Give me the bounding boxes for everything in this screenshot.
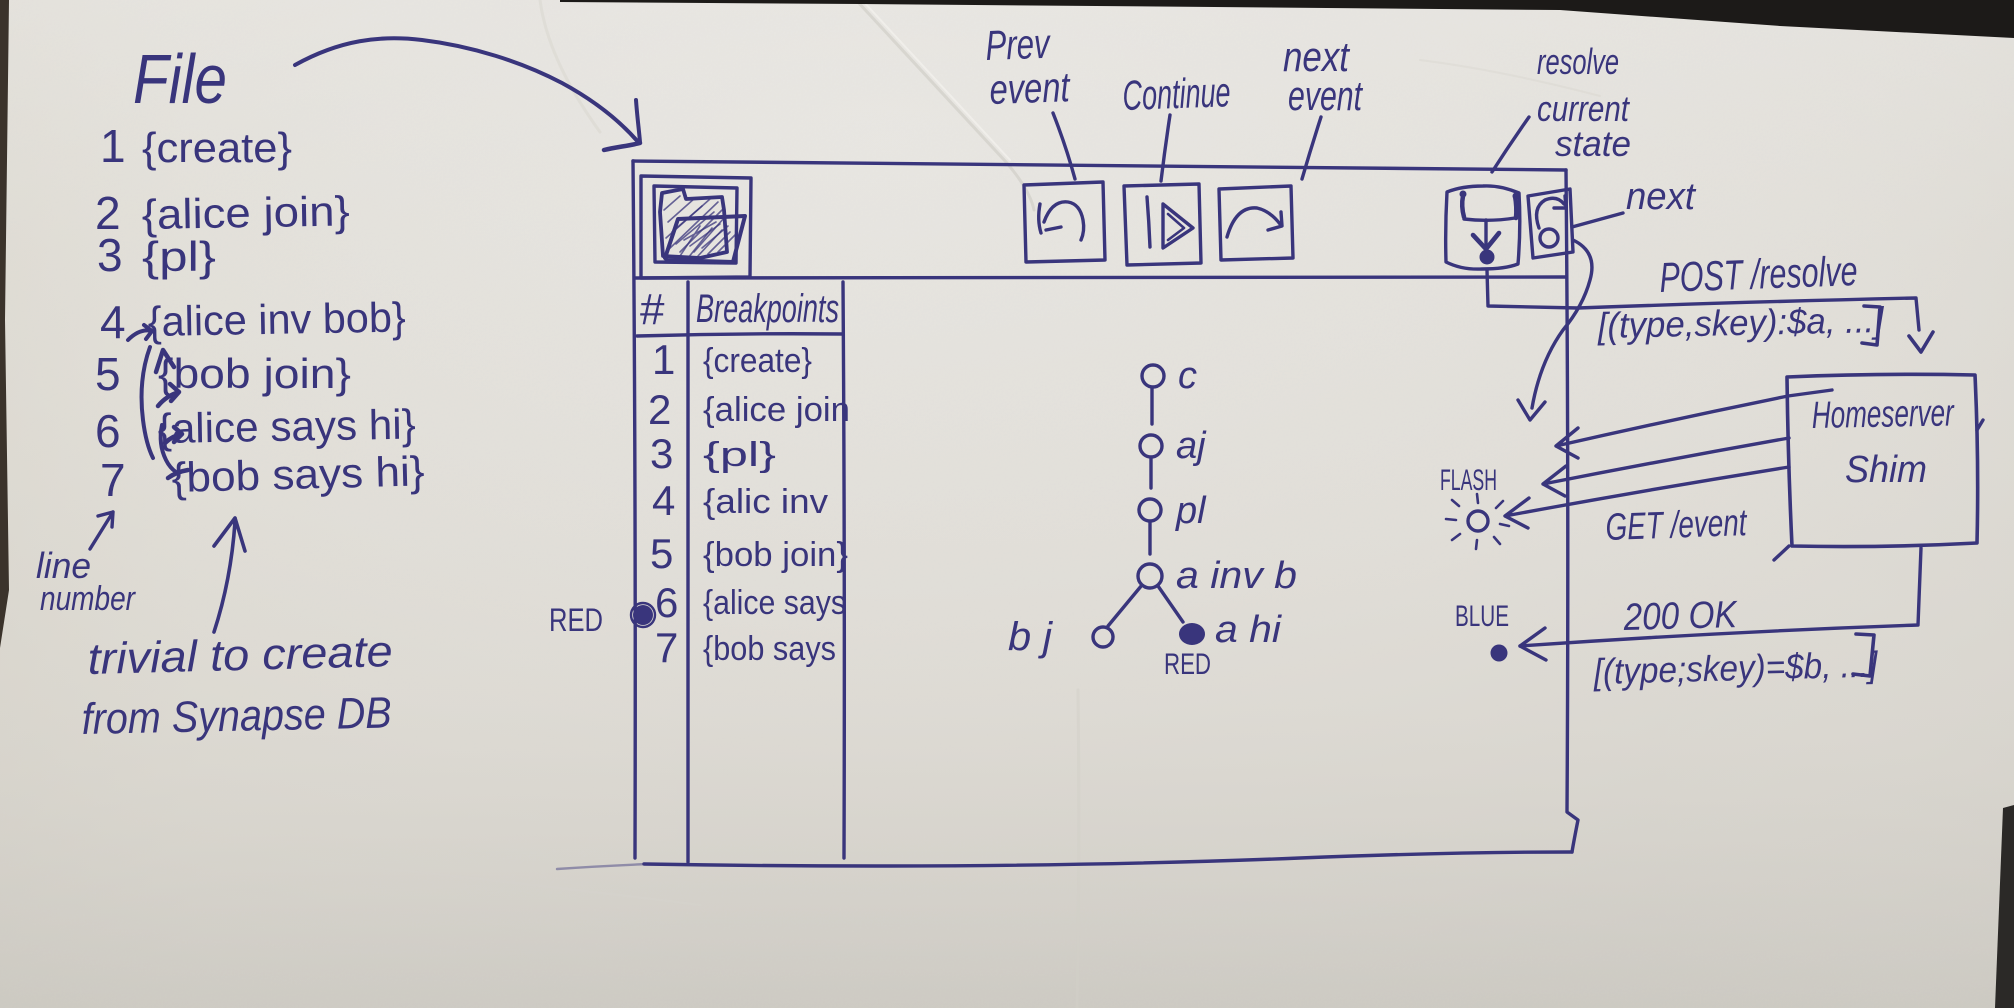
svg-text:a hi: a hi xyxy=(1215,609,1283,651)
svg-text:{create}: {create} xyxy=(142,124,292,171)
svg-text:{alic inv: {alic inv xyxy=(703,483,828,521)
svg-text:[(type,skey):$a, ...]: [(type,skey):$a, ...] xyxy=(1596,299,1885,346)
svg-text:c: c xyxy=(1178,355,1197,397)
svg-text:aj: aj xyxy=(1176,425,1207,467)
svg-text:{create}: {create} xyxy=(703,342,812,380)
svg-text:{alice says: {alice says xyxy=(703,584,846,622)
svg-text:pl: pl xyxy=(1175,490,1207,532)
svg-text:200 OK: 200 OK xyxy=(1622,594,1738,639)
svg-text:5: 5 xyxy=(650,530,673,577)
svg-text:Prev: Prev xyxy=(985,20,1053,69)
svg-text:File: File xyxy=(133,40,227,118)
svg-text:4: 4 xyxy=(100,296,126,348)
svg-text:#: # xyxy=(640,285,665,334)
svg-text:{pl}: {pl} xyxy=(703,436,776,474)
svg-text:6: 6 xyxy=(655,579,678,626)
svg-text:{bob join}: {bob join} xyxy=(158,350,351,397)
svg-text:3: 3 xyxy=(650,430,673,477)
svg-text:event: event xyxy=(989,63,1072,113)
svg-text:{alice says hi}: {alice says hi} xyxy=(157,401,416,452)
svg-text:[(type;skey)=$b, ...]: [(type;skey)=$b, ...] xyxy=(1592,644,1879,692)
svg-text:POST /resolve: POST /resolve xyxy=(1659,247,1859,301)
svg-text:6: 6 xyxy=(95,405,121,457)
svg-text:{alice join}: {alice join} xyxy=(141,187,350,238)
svg-text:{alice inv bob}: {alice inv bob} xyxy=(147,294,406,345)
svg-text:1: 1 xyxy=(652,336,675,383)
svg-text:RED: RED xyxy=(1164,648,1211,681)
svg-text:FLASH: FLASH xyxy=(1440,464,1497,497)
svg-text:number: number xyxy=(40,580,136,618)
svg-text:1: 1 xyxy=(100,120,126,172)
svg-text:2: 2 xyxy=(648,386,671,433)
svg-text:event: event xyxy=(1288,72,1364,119)
svg-text:RED: RED xyxy=(549,602,603,638)
svg-text:from Synapse DB: from Synapse DB xyxy=(81,689,392,744)
svg-text:Continue: Continue xyxy=(1122,68,1232,119)
svg-text:trivial to create: trivial to create xyxy=(87,627,393,684)
svg-text:{bob says: {bob says xyxy=(703,630,836,668)
svg-text:7: 7 xyxy=(655,624,678,671)
svg-text:4: 4 xyxy=(652,477,675,524)
svg-text:3: 3 xyxy=(97,229,123,281)
svg-text:5: 5 xyxy=(95,348,121,400)
svg-text:BLUE: BLUE xyxy=(1455,600,1509,633)
svg-text:7: 7 xyxy=(100,454,126,506)
svg-text:{alice join: {alice join xyxy=(703,391,850,429)
svg-text:{bob says hi}: {bob says hi} xyxy=(171,447,425,501)
svg-text:GET /event: GET /event xyxy=(1605,502,1748,549)
svg-text:Homeserver: Homeserver xyxy=(1811,393,1955,437)
svg-text:Breakpoints: Breakpoints xyxy=(696,287,839,331)
svg-text:b j: b j xyxy=(1008,615,1053,659)
svg-text:Shim: Shim xyxy=(1845,449,1927,491)
svg-text:a inv b: a inv b xyxy=(1176,555,1297,597)
svg-text:resolve: resolve xyxy=(1537,41,1619,82)
svg-text:state: state xyxy=(1555,123,1631,164)
svg-text:next: next xyxy=(1626,176,1696,218)
svg-text:{pl}: {pl} xyxy=(142,233,216,280)
svg-text:{bob join}: {bob join} xyxy=(703,536,848,574)
